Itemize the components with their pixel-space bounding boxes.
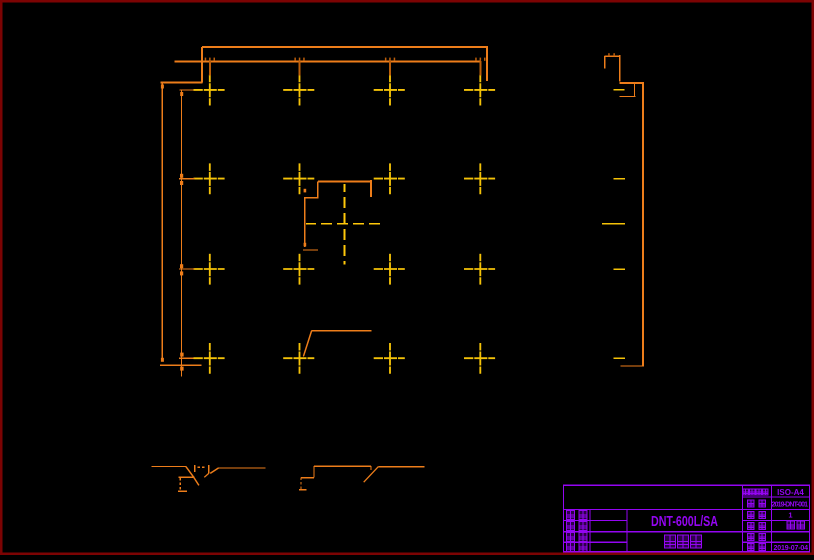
svg-text:2019-07-04: 2019-07-04 — [774, 545, 809, 552]
svg-text:DNT-600L/SA: DNT-600L/SA — [651, 513, 718, 530]
svg-text:1: 1 — [788, 511, 792, 520]
svg-text:ISO-A4: ISO-A4 — [777, 488, 804, 497]
svg-text:2019-DNT-001: 2019-DNT-001 — [772, 502, 809, 509]
